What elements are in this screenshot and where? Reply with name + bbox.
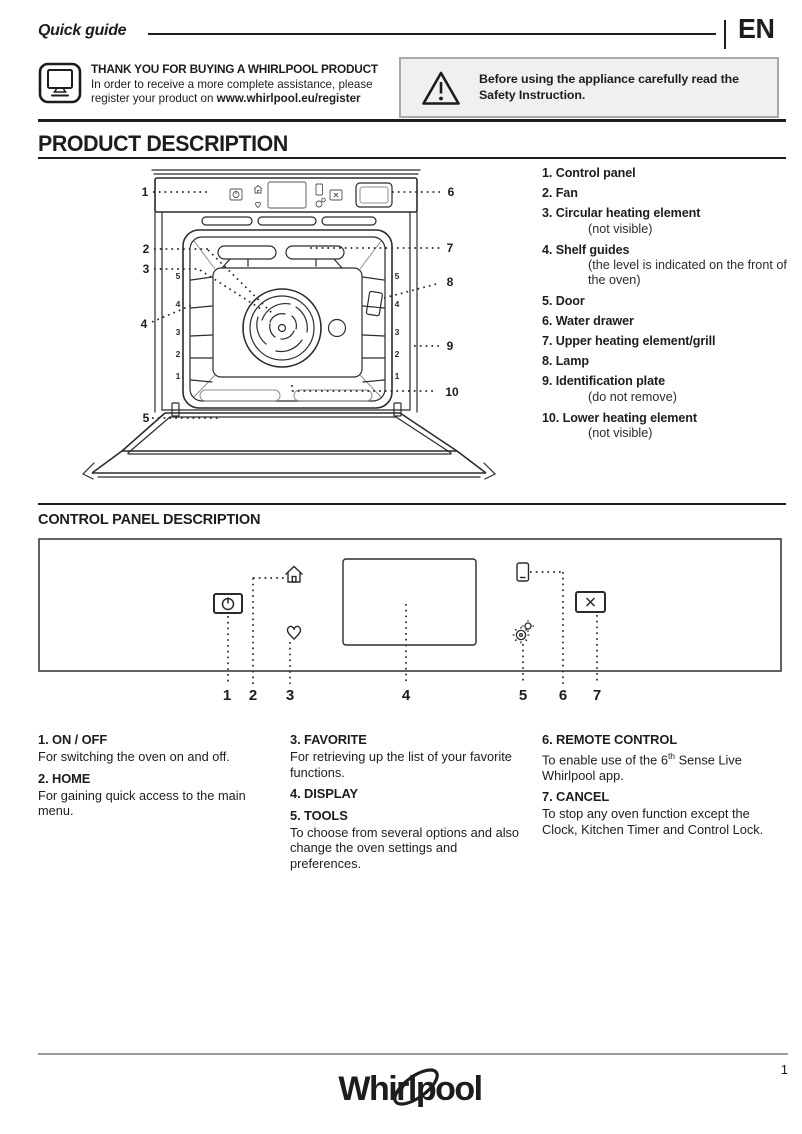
svg-text:2: 2 xyxy=(143,242,150,256)
svg-text:2: 2 xyxy=(176,349,181,359)
whirlpool-logo: Whirlpool xyxy=(330,1058,490,1120)
control-panel-rule xyxy=(38,503,786,505)
list-item: 2. Fan xyxy=(542,186,788,202)
thank-you-title: THANK YOU FOR BUYING A WHIRLPOOL PRODUCT xyxy=(91,62,386,77)
functions-column-3: 6. REMOTE CONTROL To enable use of the 6… xyxy=(542,732,788,838)
svg-text:5: 5 xyxy=(176,271,181,281)
list-item: 8. Lamp xyxy=(542,354,788,370)
control-panel-heading: CONTROL PANEL DESCRIPTION xyxy=(38,511,260,528)
svg-text:1: 1 xyxy=(395,371,400,381)
water-drawer xyxy=(356,183,392,207)
page-number: 1 xyxy=(758,1062,788,1077)
upper-heating-element xyxy=(218,246,344,268)
function-name: 7. CANCEL xyxy=(542,789,788,805)
functions-column-2: 3. FAVORITE For retrieving up the list o… xyxy=(290,732,530,872)
back-panel-light xyxy=(329,320,346,337)
register-url: www.whirlpool.eu/register xyxy=(217,92,361,105)
svg-text:5: 5 xyxy=(519,687,527,704)
control-panel-leader-lines xyxy=(228,572,597,684)
function-name: 2. HOME xyxy=(38,771,283,787)
doc-title: Quick guide xyxy=(38,22,126,40)
list-item: 5. Door xyxy=(542,294,788,310)
mini-home-icon xyxy=(254,186,262,194)
section-divider xyxy=(38,119,786,122)
svg-text:7: 7 xyxy=(593,687,601,704)
svg-text:2: 2 xyxy=(395,349,400,359)
mini-display xyxy=(268,182,306,208)
register-monitor-icon xyxy=(38,62,82,107)
remote-phone-icon xyxy=(517,563,529,581)
svg-text:8: 8 xyxy=(447,275,454,289)
function-desc: For gaining quick access to the main men… xyxy=(38,788,283,819)
favorite-heart-icon xyxy=(287,626,300,639)
cancel-button xyxy=(576,592,605,612)
control-panel-numbers: 1 2 3 4 5 6 7 xyxy=(223,687,601,704)
mini-tools-icon xyxy=(316,201,322,207)
list-item: 4. Shelf guides (the level is indicated … xyxy=(542,243,788,289)
function-desc: To choose from several options and also … xyxy=(290,825,530,872)
mini-phone-icon xyxy=(316,184,323,195)
vent-slots xyxy=(202,217,376,225)
header-rule xyxy=(148,33,716,35)
safety-warning-text: Before using the appliance carefully rea… xyxy=(479,72,777,103)
functions-column-1: 1. ON / OFF For switching the oven on an… xyxy=(38,732,283,820)
cavity-floor xyxy=(200,390,372,401)
thank-you-text: THANK YOU FOR BUYING A WHIRLPOOL PRODUCT… xyxy=(91,62,386,107)
language-code: EN xyxy=(738,13,774,45)
diagram-number-labels: 1 2 3 4 5 6 7 8 9 10 xyxy=(141,185,459,425)
quick-guide-page: Quick guide EN THANK YOU FOR BUYING A WH… xyxy=(0,0,802,1134)
svg-text:5: 5 xyxy=(395,271,400,281)
svg-text:2: 2 xyxy=(249,687,257,704)
list-item: 3. Circular heating element (not visible… xyxy=(542,206,788,237)
function-name: 5. TOOLS xyxy=(290,808,530,824)
svg-text:3: 3 xyxy=(395,327,400,337)
oven-mini-control-panel xyxy=(230,182,342,208)
function-desc: To enable use of the 6th Sense Live Whir… xyxy=(542,749,788,783)
list-item: 7. Upper heating element/grill xyxy=(542,334,788,350)
svg-text:3: 3 xyxy=(286,687,294,704)
warning-triangle-icon xyxy=(421,69,461,107)
svg-text:10: 10 xyxy=(445,385,459,399)
list-item: 10. Lower heating element (not visible) xyxy=(542,411,788,442)
product-parts-list: 1. Control panel 2. Fan 3. Circular heat… xyxy=(542,166,788,446)
svg-text:3: 3 xyxy=(143,262,150,276)
svg-text:5: 5 xyxy=(143,411,150,425)
function-name: 1. ON / OFF xyxy=(38,732,283,748)
svg-text:4: 4 xyxy=(395,299,400,309)
product-description-underline xyxy=(38,157,786,159)
svg-text:4: 4 xyxy=(141,317,148,331)
list-item: 1. Control panel xyxy=(542,166,788,182)
shelf-level-numbers: 5 4 3 2 1 5 4 3 2 1 xyxy=(176,271,400,381)
home-icon xyxy=(286,567,303,583)
oven-cabinet xyxy=(152,170,420,412)
mini-heart-icon xyxy=(256,202,261,207)
function-name: 4. DISPLAY xyxy=(290,786,530,802)
function-name: 6. REMOTE CONTROL xyxy=(542,732,788,748)
product-description-heading: PRODUCT DESCRIPTION xyxy=(38,131,288,157)
list-item: 9. Identification plate (do not remove) xyxy=(542,374,788,405)
thank-you-block: THANK YOU FOR BUYING A WHIRLPOOL PRODUCT… xyxy=(38,62,386,107)
cancel-x-icon xyxy=(587,598,595,606)
safety-warning-box: Before using the appliance carefully rea… xyxy=(399,57,779,118)
lamp xyxy=(366,291,382,316)
header-vertical-bar xyxy=(724,20,726,49)
footer-rule xyxy=(38,1053,788,1055)
svg-text:4: 4 xyxy=(402,687,411,704)
tools-gears-icon xyxy=(513,620,534,643)
svg-text:3: 3 xyxy=(176,327,181,337)
svg-text:7: 7 xyxy=(447,241,454,255)
function-desc: For switching the oven on and off. xyxy=(38,749,283,765)
function-name: 3. FAVORITE xyxy=(290,732,530,748)
display-screen xyxy=(343,559,476,645)
svg-text:4: 4 xyxy=(176,299,181,309)
function-desc: To stop any oven function except the Clo… xyxy=(542,806,788,837)
svg-text:9: 9 xyxy=(447,339,454,353)
oven-diagram: 5 4 3 2 1 5 4 3 2 1 xyxy=(80,160,500,490)
function-desc: For retrieving up the list of your favor… xyxy=(290,749,530,780)
svg-text:1: 1 xyxy=(142,185,149,199)
svg-text:6: 6 xyxy=(448,185,455,199)
fan-icon xyxy=(243,289,321,367)
power-button xyxy=(214,594,242,613)
list-item: 6. Water drawer xyxy=(542,314,788,330)
control-panel-diagram: 1 2 3 4 5 6 7 xyxy=(38,538,782,706)
svg-text:1: 1 xyxy=(176,371,181,381)
svg-text:6: 6 xyxy=(559,687,567,704)
svg-text:1: 1 xyxy=(223,687,231,704)
